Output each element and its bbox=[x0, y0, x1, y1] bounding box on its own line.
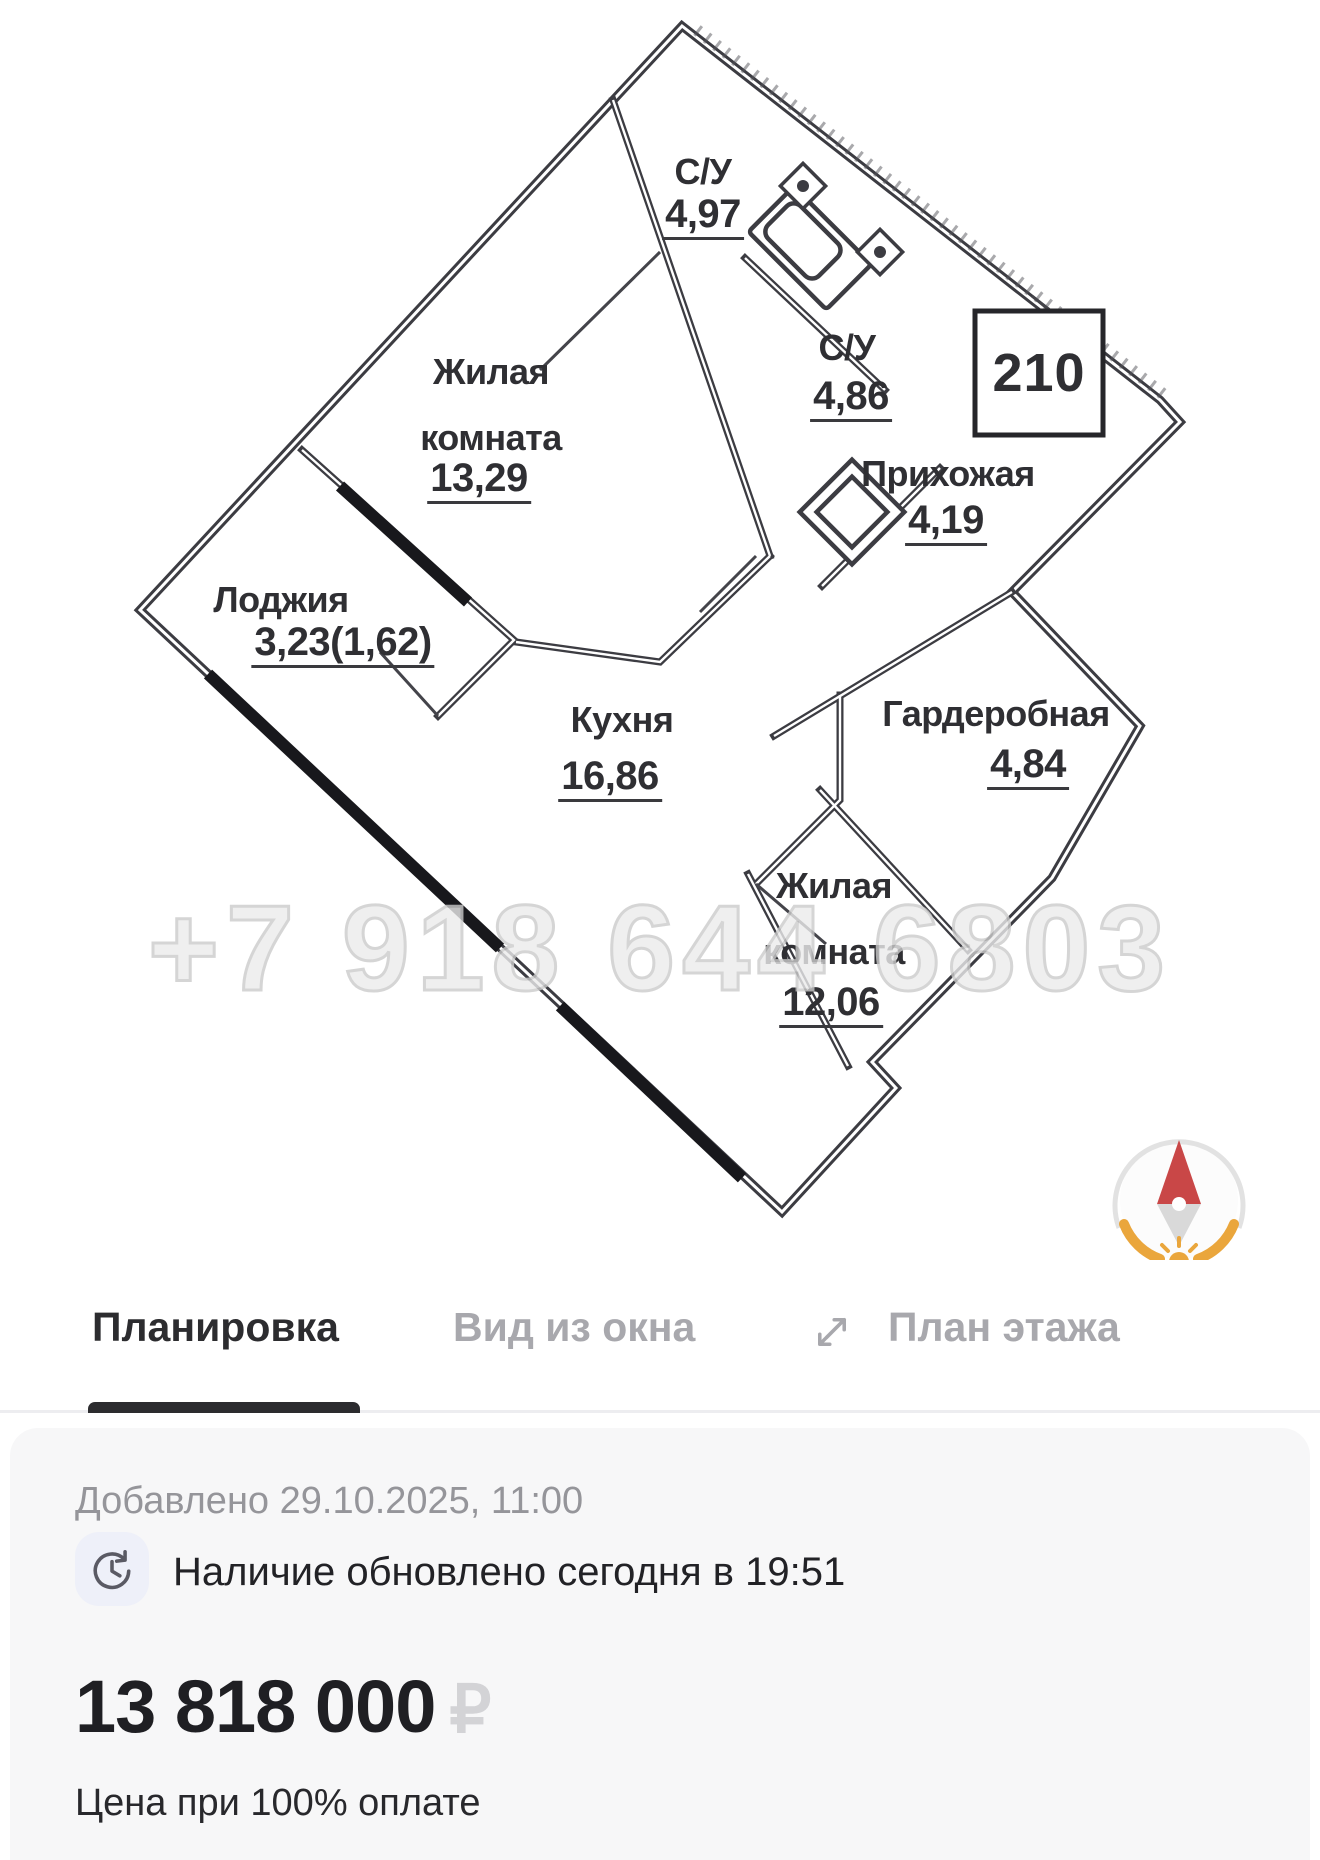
unit-number: 210 bbox=[992, 342, 1085, 404]
room-label-hall: Прихожая bbox=[861, 454, 1035, 494]
room-area-wardrobe: 4,84 bbox=[987, 742, 1069, 787]
room-area-living2: 12,06 bbox=[779, 980, 883, 1025]
availability-text: Наличие обновлено сегодня в 19:51 bbox=[173, 1550, 845, 1595]
tab-layout[interactable]: Планировка bbox=[92, 1304, 339, 1351]
compass-icon[interactable] bbox=[1115, 1140, 1243, 1260]
active-tab-underline bbox=[88, 1402, 360, 1413]
price-value: 13 818 000 bbox=[75, 1665, 435, 1748]
room-label-living1: Жилая комната bbox=[391, 339, 591, 471]
room-label-su2: С/У bbox=[819, 328, 876, 368]
room-label-kitchen: Кухня bbox=[571, 700, 674, 740]
expand-icon[interactable] bbox=[812, 1312, 852, 1352]
room-area-su1: 4,97 bbox=[662, 192, 744, 237]
room-label-wardrobe: Гардеробная bbox=[882, 694, 1109, 734]
added-date-text: Добавлено 29.10.2025, 11:00 bbox=[75, 1480, 583, 1523]
room-area-living1: 13,29 bbox=[427, 456, 531, 501]
room-area-kitchen: 16,86 bbox=[558, 754, 662, 799]
room-area-loggia: 3,23(1,62) bbox=[251, 620, 434, 665]
floor-plan-canvas[interactable] bbox=[0, 0, 1320, 1260]
currency-symbol: ₽ bbox=[449, 1672, 490, 1746]
price-note: Цена при 100% оплате bbox=[75, 1782, 480, 1825]
tab-floor-plan[interactable]: План этажа bbox=[888, 1304, 1120, 1351]
tab-window-view[interactable]: Вид из окна bbox=[453, 1304, 695, 1351]
room-label-loggia: Лоджия bbox=[213, 580, 348, 620]
room-area-hall: 4,19 bbox=[905, 498, 987, 543]
clock-refresh-icon bbox=[75, 1532, 149, 1606]
room-label-living2: Жилая комната bbox=[729, 853, 939, 985]
room-area-su2: 4,86 bbox=[810, 374, 892, 419]
price-row: 13 818 000₽ bbox=[75, 1664, 490, 1749]
room-label-su1: С/У bbox=[675, 152, 732, 192]
